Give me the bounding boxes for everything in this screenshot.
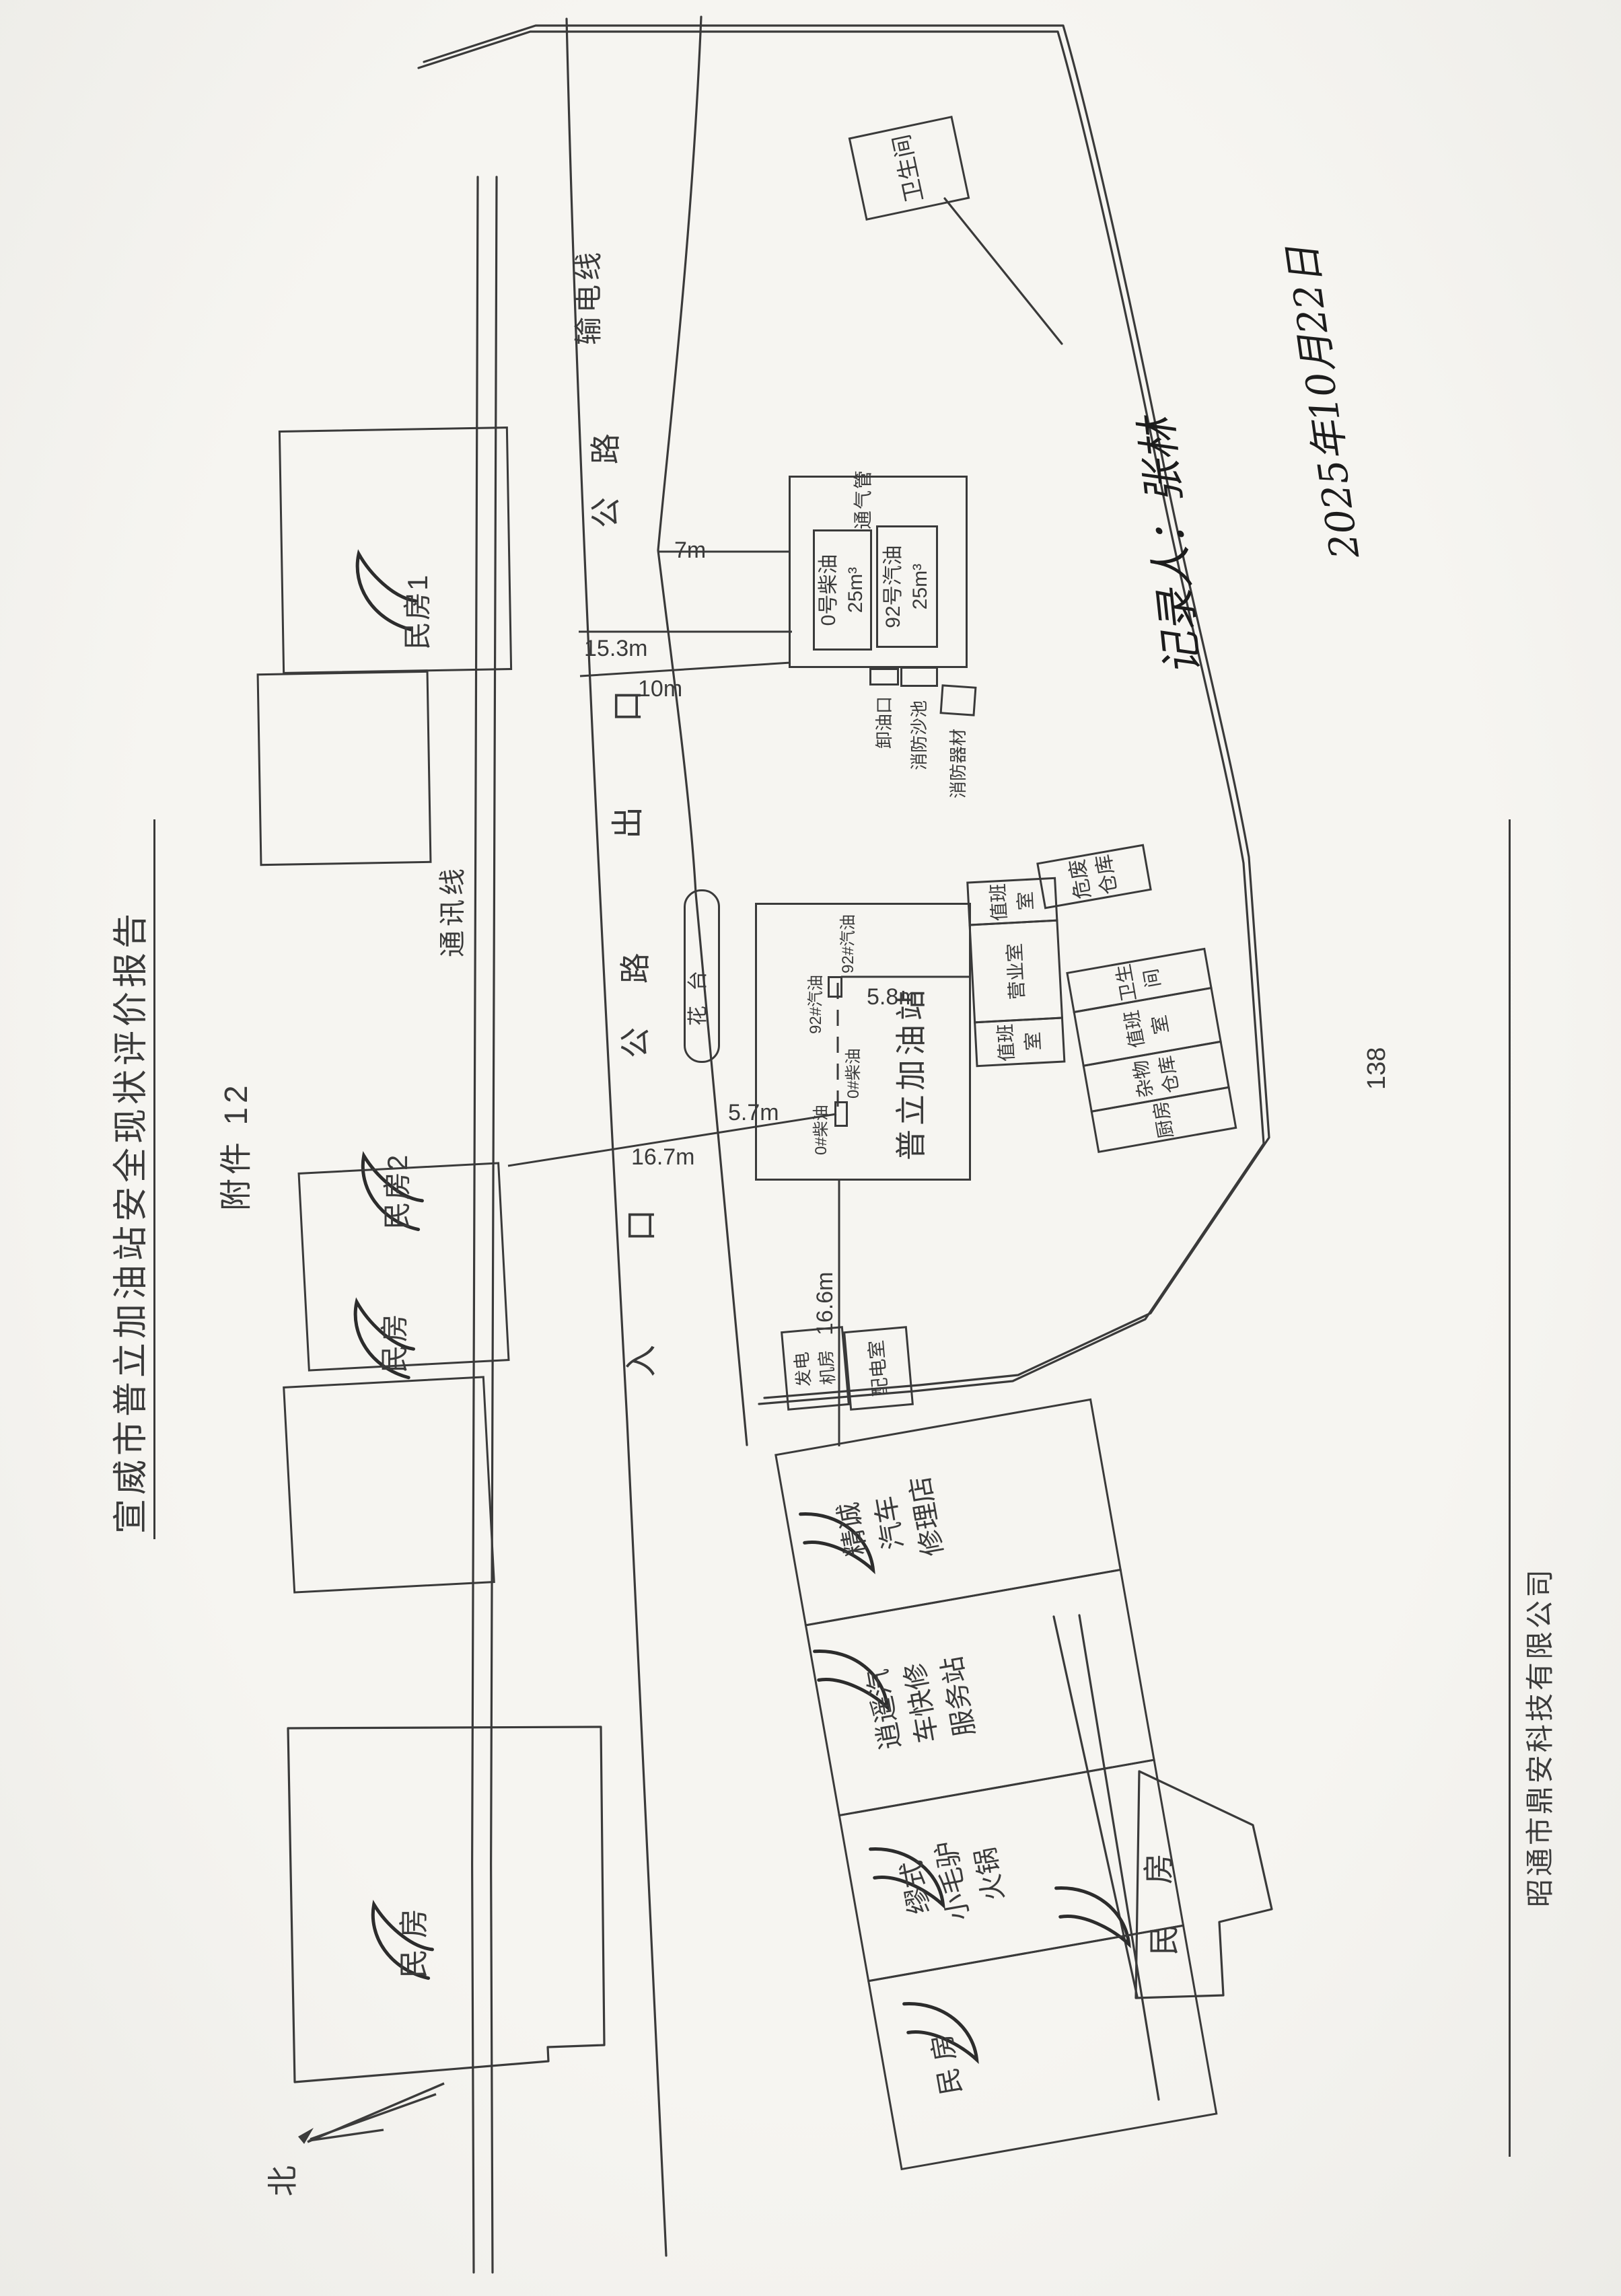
dim-15-3m: 15.3m [584, 636, 648, 662]
house4-polygon [288, 1727, 604, 2082]
dim-7m: 7m [674, 538, 706, 564]
generator-room-box: 发电 机房 [781, 1326, 850, 1411]
fire-sand-pit-label: 消防沙池 [910, 700, 929, 770]
company-name: 昭通市鼎安科技有限公司 [1525, 1567, 1555, 1907]
l-house-label-min: 民 [1148, 1925, 1182, 1956]
unloading-port-label: 卸油口 [875, 696, 894, 749]
entrance-label: 入 口 [624, 1162, 659, 1377]
dispenser-0-box [834, 1101, 848, 1127]
footer-rule [1509, 819, 1511, 2157]
dispenser-0-label-b: 0#柴油 [845, 1048, 863, 1099]
flower-bed-label: 花台 [688, 956, 709, 1026]
report-title: 宣威市普立加油站安全现状评价报告 [102, 910, 153, 1534]
house3-label: 民房 [380, 1311, 410, 1373]
station-name-label: 普立加油站 [895, 986, 929, 1160]
tank-92-gasoline: 92号汽油 25m³ [876, 525, 938, 648]
canopy-box [755, 903, 971, 1181]
toilet-link-line [945, 198, 1062, 344]
station-front-rooms-duty-room-1: 值班室 [974, 1016, 1065, 1067]
house3-box [283, 1376, 495, 1593]
landscape-drawing: 宣威市普立加油站安全现状评价报告 附件 12 138 昭通市鼎安科技有限公司 记… [0, 0, 1621, 2296]
power-distribution-room-box: 配电室 [843, 1326, 914, 1411]
fire-equipment-label: 消防器材 [949, 729, 968, 799]
station-front-rooms: 值班室营业室值班室 [966, 871, 1066, 1066]
scanned-report-page: 宣威市普立加油站安全现状评价报告 附件 12 138 昭通市鼎安科技有限公司 记… [0, 0, 1621, 2296]
dispenser-92-label-a: 92#汽油 [807, 975, 825, 1034]
road-edge-a [567, 19, 666, 2256]
dim-5-8m: 5.8m [867, 984, 918, 1010]
site-boundary-inner [424, 26, 1269, 1398]
dispenser-0-label-a: 0#柴油 [813, 1105, 830, 1155]
attachment-label: 附件 12 [219, 1081, 254, 1211]
house1-label: 民房1 [402, 574, 433, 650]
station-front-rooms-business-room: 营业室 [968, 920, 1063, 1024]
vent-pipe-label: 通气管 [853, 469, 873, 529]
house4-label: 民房 [398, 1898, 431, 1978]
dim-16-6: 16.6m [813, 1272, 838, 1336]
dispenser-92-label-b: 92#汽油 [840, 914, 857, 973]
l-house-label-fang: 房 [1143, 1853, 1176, 1884]
road-label-1: 公 路 [589, 421, 623, 528]
unloading-port-box [869, 668, 899, 686]
dim-10m: 10m [638, 676, 682, 702]
page-number: 138 [1363, 1047, 1391, 1090]
site-boundary-outer [419, 32, 1264, 1404]
fire-equipment-box [940, 684, 977, 716]
comm-line-label: 通讯线 [439, 864, 468, 957]
house2-label: 民房2 [382, 1154, 412, 1230]
road-label-2: 公 路 [619, 935, 653, 1058]
header-underline [153, 819, 155, 1539]
power-line-label: 输电线 [573, 248, 604, 345]
road-edge-b [658, 17, 747, 1445]
dim-5-7m: 5.7m [728, 1100, 779, 1126]
dispenser-92-box [828, 976, 842, 998]
north-arrow [298, 2083, 444, 2144]
tank-0-diesel: 0号柴油 25m³ [813, 529, 872, 651]
house1-a-box [279, 427, 512, 674]
house1-b-box [257, 671, 432, 866]
fire-sand-pit-box [900, 667, 938, 687]
north-label: 北 [266, 2165, 300, 2196]
dim-16-7m: 16.7m [631, 1144, 695, 1171]
station-front-rooms-duty-room-2: 值班室 [966, 877, 1058, 926]
